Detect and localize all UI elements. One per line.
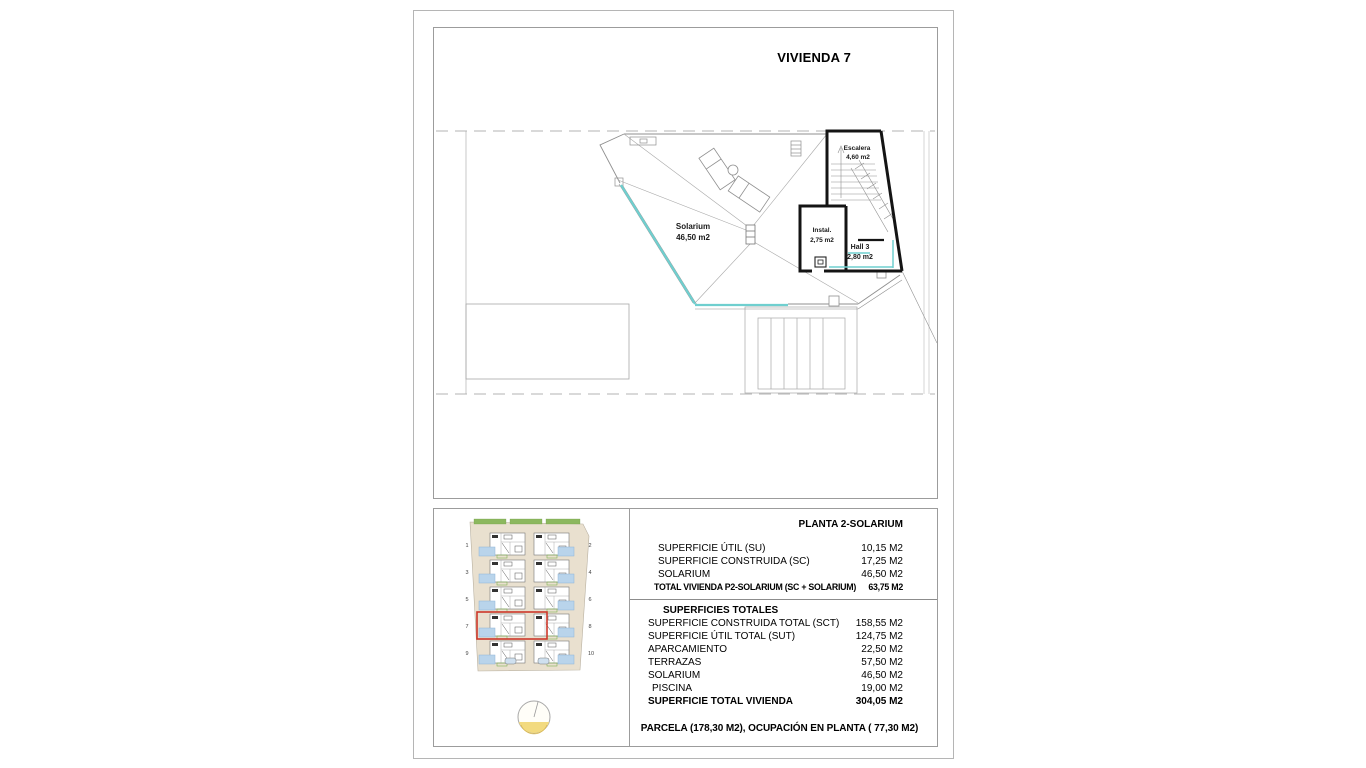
unit-number: 1 — [465, 543, 468, 549]
garden-strip — [474, 519, 580, 524]
pool-outline — [466, 304, 629, 379]
door-opening — [812, 267, 824, 275]
table-row-label: TERRAZAS — [630, 656, 701, 669]
table-row-value: 17,25 M2 — [861, 555, 903, 568]
drawing-sheet: VIVIENDA 7 — [413, 10, 954, 759]
table-row: SOLARIUM 46,50 M2 — [630, 669, 903, 682]
table-row-label: TOTAL VIVIENDA P2-SOLARIUM (SC + SOLARIU… — [630, 581, 856, 594]
table-row-value: 19,00 M2 — [861, 682, 903, 695]
table-row: APARCAMIENTO 22,50 M2 — [630, 643, 903, 656]
table-row: SOLARIUM 46,50 M2 — [630, 568, 903, 581]
unit-number: 8 — [588, 624, 591, 630]
areas-table: PLANTA 2-SOLARIUM SUPERFICIE ÚTIL (SU) 1… — [629, 509, 937, 746]
escalera-area-label: 4,60 m2 — [846, 154, 870, 161]
solarium-label: Solarium — [676, 222, 710, 231]
table-row: SUPERFICIE CONSTRUIDA (SC) 17,25 M2 — [630, 555, 903, 568]
hall-area-label: 2,80 m2 — [847, 254, 873, 261]
table-row-value: 46,50 M2 — [861, 568, 903, 581]
unit-number: 3 — [465, 570, 468, 576]
table-row-label: PISCINA — [630, 682, 692, 695]
table-row-total: TOTAL VIVIENDA P2-SOLARIUM (SC + SOLARIU… — [630, 581, 903, 594]
table-row-label: SUPERFICIE CONSTRUIDA TOTAL (SCT) — [630, 617, 839, 630]
vent-grille — [791, 141, 801, 156]
table-row-label: SUPERFICIE TOTAL VIVIENDA — [630, 695, 793, 708]
table-row: SUPERFICIE CONSTRUIDA TOTAL (SCT) 158,55… — [630, 617, 903, 630]
table-row-label: SOLARIUM — [630, 568, 710, 581]
table-row: SUPERFICIE ÚTIL TOTAL (SUT) 124,75 M2 — [630, 630, 903, 643]
round-table — [728, 165, 738, 175]
escalera-label: Escalera — [844, 145, 871, 152]
table-row-label: SUPERFICIE ÚTIL (SU) — [630, 542, 765, 555]
unit-number: 2 — [588, 543, 591, 549]
table-row-value: 46,50 M2 — [861, 669, 903, 682]
instal-area-label: 2,75 m2 — [810, 237, 834, 244]
unit-number: 4 — [588, 570, 591, 576]
table-row-label: SUPERFICIE CONSTRUIDA (SC) — [630, 555, 810, 568]
table-row: SUPERFICIE ÚTIL (SU) 10,15 M2 — [630, 542, 903, 555]
site-plan-drawing: 1 3 5 7 9 2 4 6 8 10 — [434, 509, 629, 746]
table-row-value: 304,05 M2 — [856, 695, 903, 708]
compass-icon — [518, 701, 550, 734]
roof-post — [746, 225, 755, 244]
table-row-label: SUPERFICIE ÚTIL TOTAL (SUT) — [630, 630, 795, 643]
plot-outline — [470, 522, 589, 671]
table-row-total: SUPERFICIE TOTAL VIVIENDA 304,05 M2 — [630, 695, 903, 708]
table-row-label: APARCAMIENTO — [630, 643, 727, 656]
table-row-value: 124,75 M2 — [856, 630, 903, 643]
door-detail — [815, 257, 826, 267]
unit-number: 10 — [588, 651, 594, 657]
table-row-value: 57,50 M2 — [861, 656, 903, 669]
site-plan-panel: 1 3 5 7 9 2 4 6 8 10 — [434, 509, 629, 746]
unit-number: 9 — [465, 651, 468, 657]
table-row: PISCINA 19,00 M2 — [630, 682, 903, 695]
parcel-footer: PARCELA (178,30 M2), OCUPACIÓN EN PLANTA… — [630, 722, 929, 735]
floor-plan-panel: VIVIENDA 7 — [433, 27, 938, 499]
table-row-value: 22,50 M2 — [861, 643, 903, 656]
sun-lounger — [728, 176, 770, 212]
ac-unit — [630, 137, 656, 145]
section-totales-title: SUPERFICIES TOTALES — [630, 604, 903, 617]
floor-plan-drawing: Solarium 46,50 m2 Escalera 4,60 m2 Insta… — [434, 28, 937, 498]
table-row-value: 10,15 M2 — [861, 542, 903, 555]
unit-number: 5 — [465, 597, 468, 603]
table-row-label: SOLARIUM — [630, 669, 700, 682]
hall-label: Hall 3 — [851, 244, 870, 251]
pergola-deck — [745, 307, 857, 393]
section-planta2: SUPERFICIE ÚTIL (SU) 10,15 M2 SUPERFICIE… — [630, 542, 903, 594]
section-totales: SUPERFICIE CONSTRUIDA TOTAL (SCT) 158,55… — [630, 617, 903, 708]
unit-number: 7 — [465, 624, 468, 630]
table-row-value: 158,55 M2 — [856, 617, 903, 630]
solarium-area-label: 46,50 m2 — [676, 233, 710, 242]
unit-number: 6 — [588, 597, 591, 603]
info-panel: 1 3 5 7 9 2 4 6 8 10 — [433, 508, 938, 747]
table-divider — [630, 599, 937, 600]
table-header: PLANTA 2-SOLARIUM — [630, 518, 903, 531]
instal-label: Instal. — [813, 227, 832, 234]
table-row: TERRAZAS 57,50 M2 — [630, 656, 903, 669]
table-row-value: 63,75 M2 — [868, 581, 903, 594]
